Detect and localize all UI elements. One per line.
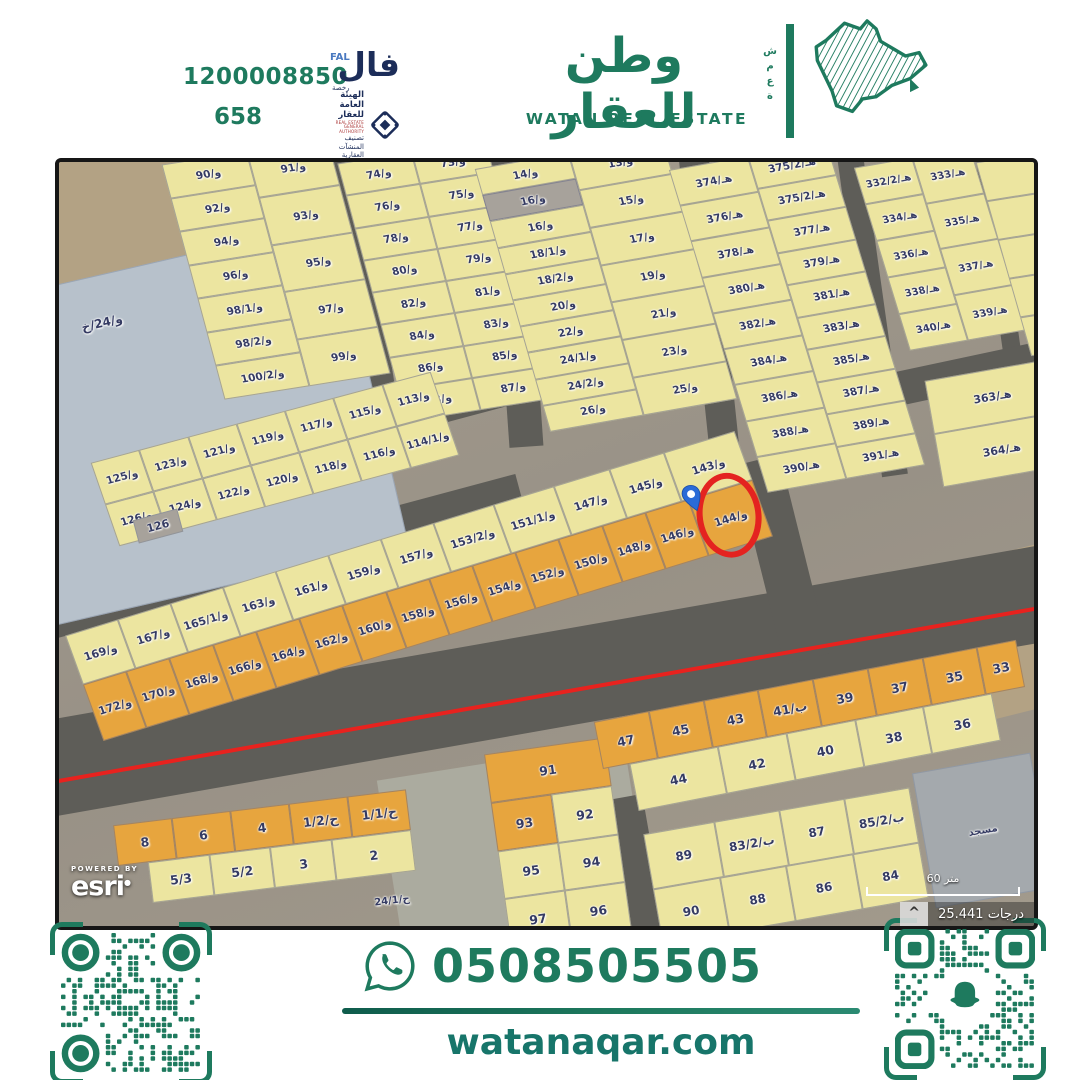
plot-label: و/156 [442,589,479,611]
plot-label: 44 [668,770,688,788]
plot-label: و/21 [650,305,678,321]
plot-label: 86 [815,879,834,896]
plot-label: و/151/1 [509,507,557,533]
plot-label: و/165/1 [182,607,230,633]
plot-label: و/100/2 [240,367,286,385]
plot-cell: ح/1/2 [289,797,353,845]
plot-label: 95 [522,862,541,879]
plot-label: و/150 [572,550,609,572]
plot-label: و/172 [96,695,133,717]
plot-label: و/116 [362,444,397,464]
plot-label: و/148 [615,537,652,559]
plot-label: و/120 [265,470,300,490]
plot-label: ب/83/2 [728,833,776,855]
plot-label: و/85 [491,348,519,364]
plot-label: و/76 [373,198,401,214]
plot-label: و/22 [557,324,585,340]
plot-label: و/80 [391,263,419,279]
plot-label: ح/1/2 [302,811,339,830]
plot-label: 45 [671,720,691,738]
plot-label: 4 [257,820,267,836]
plot-label: و/160 [356,616,393,638]
plot-label: ب/85/2 [858,810,906,832]
plot-label: و/15 [617,193,645,209]
scalebar-label: 60 متر [866,872,1020,885]
plot-label: و/114/1 [405,430,451,453]
plot-label: و/94 [213,234,241,250]
fal-license-number: 1200008850 [183,64,348,90]
plot-label: و/152 [529,563,566,585]
plot-label: 47 [616,731,636,749]
plot-label: 3 [298,856,308,872]
plot-label: و/20 [549,297,577,313]
plot-label: 89 [674,847,693,864]
plot-label: و/170 [140,682,177,704]
plot-label: و/75 [447,187,475,203]
plot-label: 43 [725,710,745,728]
qr-code-snapchat [884,918,1046,1080]
real-estate-authority-logo: الهيئة العامة للعقار REAL ESTATE GENERAL… [318,100,402,150]
plot-label: و/96 [222,268,250,284]
plot-cell: 5/2 [209,847,275,895]
plot-label: 97 [528,911,547,928]
plot-label: 90 [682,903,701,920]
block-rows: هـ/363هـ/364 [925,359,1038,488]
plot-label: و/147 [572,491,609,513]
plot-label: و/118 [313,457,348,477]
plot-cell: 88 [720,866,796,930]
plot-label: و/82 [399,295,427,311]
website-url: watanaqar.com [342,1022,860,1063]
esri-attribution: POWERED BY esri● [71,866,138,900]
plot-label: و/23 [660,343,688,359]
plot-label: 91 [538,761,557,778]
brand-side-word: ش م ع ة [760,44,780,104]
plot-label: هـ/376 [705,208,745,226]
authority-name-ar: الهيئة العامة للعقار [318,91,364,120]
plot-label: و/16 [519,192,547,208]
plot-label: هـ/364 [982,440,1022,459]
plot-label: 96 [589,902,608,919]
fal-logo-latin: FAL [330,52,350,63]
plot-label: و/93 [292,207,320,223]
plot-label: و/18/2 [536,270,575,288]
plot-label: 87 [807,824,826,841]
plot-label: 8 [140,834,150,850]
plot-label: 5/3 [169,870,193,888]
phone-number: 0508505505 [432,939,762,993]
plot-label: و/159 [345,561,382,583]
plot-label: ح/1/1 [361,804,398,823]
plot-cell: 8 [113,818,177,866]
plot-label: و/98/2 [234,334,273,351]
plot-label: و/83 [482,316,510,332]
block-rows: 89ب/83/287ب/85/290888684 [643,787,928,930]
plot-cell: 94 [558,834,625,891]
plot-label: و/163 [240,593,277,615]
authority-name-en: REAL ESTATE GENERAL AUTHORITY [318,121,364,135]
plot-label: 35 [944,667,964,685]
plot-label: هـ/363 [972,387,1012,406]
plot-label: و/146 [659,523,696,545]
plot-label: هـ/333 [929,167,967,184]
brand-divider-bar [786,24,794,138]
plot-label: هـ/338 [903,282,941,299]
plot-label: و/113 [396,389,431,409]
plot-label: هـ/334 [881,209,919,226]
plot-label: 40 [815,741,835,759]
map-block-b8: 864ح/1/2ح/1/15/35/232 [113,789,416,906]
authority-diamond-icon [368,108,402,142]
plot-label: و/73 [439,158,467,170]
plot-label: هـ/335 [943,213,981,230]
plot-label: و/16 [526,219,554,235]
plot-label: هـ/382 [738,315,778,333]
plot-label: و/161 [292,577,329,599]
plot-label: و/169 [82,641,119,663]
map-block-b83: 89ب/83/287ب/85/290888684 [643,787,928,930]
plot-label: و/121 [202,441,237,461]
plot-label: هـ/375/2 [777,188,828,208]
map-scalebar: 60 متر [866,872,1020,896]
plot-label: هـ/337 [957,258,995,275]
plot-label: هـ/381 [812,285,852,303]
plot-label: و/24/1 [559,349,598,367]
plot-label: و/18/1 [528,244,567,262]
plot-label: هـ/389 [851,415,891,433]
plot-label: و/26 [579,403,607,419]
plot-label: و/74 [365,166,393,182]
map-status-strip: ^ درجات 25.441 [900,902,1034,926]
plot-label: 36 [952,715,972,733]
flyer: 1200008850 658 فال FAL رخصة الهيئة العام… [0,0,1080,1080]
plot-label: هـ/388 [771,423,811,441]
plot-label: 33 [991,658,1011,676]
plot-label: هـ/390 [782,459,822,477]
plot-label: هـ/383 [822,318,862,336]
plot-label: و/162 [313,629,350,651]
plot-label: هـ/385 [831,350,871,368]
phone-row: 0508505505 [362,938,762,994]
plot-label: هـ/379 [802,253,842,271]
plot-label: و/24/2 [566,375,605,393]
plot-label: و/84 [408,328,436,344]
esri-logo: esri● [71,873,138,900]
plot-cell: 96 [565,882,632,930]
plot-label: 92 [575,805,594,822]
plot-label: 39 [835,689,855,707]
plot-label: هـ/340 [915,319,953,336]
plot-label: و/167 [135,625,172,647]
plot-label: 37 [889,678,909,696]
plot-label: 94 [582,854,601,871]
scalebar-line [866,887,1020,896]
plot-label: و/115 [347,402,382,422]
plot-cell: ح/1/1 [347,789,411,837]
plot-cell: 93 [491,794,558,851]
plot-label: 93 [515,814,534,831]
plot-label: هـ/391 [861,447,901,465]
authority-text: الهيئة العامة للعقار REAL ESTATE GENERAL… [318,91,364,158]
authority-classification: تصنيف المنشآت العقارية [318,134,364,158]
plot-cell: 5/3 [148,855,214,903]
plot-label: هـ/380 [727,280,767,298]
plot-label: و/92 [204,200,232,216]
plot-label: و/164 [269,642,306,664]
plot-label: و/145 [627,474,664,496]
whatsapp-icon [362,938,418,994]
plot-label: ح/24/1 [374,893,410,908]
brand-name-english: WATAN REAL ESTATE [512,110,762,128]
plot-label: و/99 [330,349,358,365]
plot-label: 38 [884,728,904,746]
plot-label: و/158 [399,603,436,625]
plot-label: هـ/384 [749,351,789,369]
plot-label: هـ/375/2 [767,158,818,175]
plot-label: و/91 [279,160,307,176]
plot-label: هـ/378 [716,244,756,262]
plot-label: و/168 [183,669,220,691]
block-rows: 864ح/1/2ح/1/15/35/232 [113,789,416,906]
plot-label: 88 [748,891,767,908]
plot-label: 6 [198,827,208,843]
plot-label: و/17 [628,230,656,246]
plot-label: و/13 [606,158,634,171]
plot-label: هـ/332/2 [865,172,913,190]
map-canvas: و/24/خو/90و/92و/94و/96و/98/1و/98/2و/100/… [59,162,1034,926]
plot-label: و/95 [305,255,333,271]
plot-label: و/25 [671,380,699,396]
plot-label: و/98/1 [225,300,264,317]
plot-label: و/90 [195,167,223,183]
plot-label: و/19 [639,268,667,284]
parcel-map: و/24/خو/90و/92و/94و/96و/98/1و/98/2و/100/… [55,158,1038,930]
plot-label: و/81 [473,283,501,299]
map-scale-readout: درجات 25.441 [938,907,1024,922]
plot-label: و/157 [398,545,435,567]
plot-cell: 6 [172,811,236,859]
plot-label: و/77 [456,219,484,235]
authority-license-number: 658 [212,104,264,130]
plot-label: هـ/336 [892,246,930,263]
plot-label: و/79 [465,251,493,267]
plot-label: و/123 [153,454,188,474]
saudi-arabia-map-icon [800,4,950,134]
plot-label: مسجد [968,823,999,839]
plot-label: و/87 [499,380,527,396]
plot-label: و/166 [226,656,263,678]
plot-label: 42 [747,755,767,773]
plot-label: هـ/387 [841,382,881,400]
plot-label: هـ/377 [792,221,832,239]
plot-cell: 86 [786,854,862,921]
plot-label: و/14 [511,166,539,182]
qr-code-left [50,922,212,1080]
north-reset-button[interactable]: ^ [900,902,928,926]
plot-label: و/153/2 [448,526,496,552]
plot-label: و/119 [250,428,285,448]
plot-cell: 4 [230,804,294,852]
map-block-b363: هـ/363هـ/364 [925,359,1038,488]
plot-label: ب/41 [772,698,809,719]
plot-label: 5/2 [230,863,254,881]
plot-label: و/122 [216,483,251,503]
plot-label: هـ/339 [971,304,1009,321]
plot-label: هـ/386 [760,387,800,405]
plot-label: و/97 [317,302,345,318]
plot-label: 2 [369,847,379,863]
plot-label: و/125 [105,467,140,487]
plot-label: و/154 [486,576,523,598]
plot-cell: 3 [270,840,336,888]
plot-label: 126 [145,517,171,536]
plot-label: و/78 [382,231,410,247]
plot-label: هـ/374 [694,172,734,190]
plot-label: و/117 [299,415,334,435]
footer-divider [342,1008,860,1014]
plot-cell: 95 [498,843,565,900]
